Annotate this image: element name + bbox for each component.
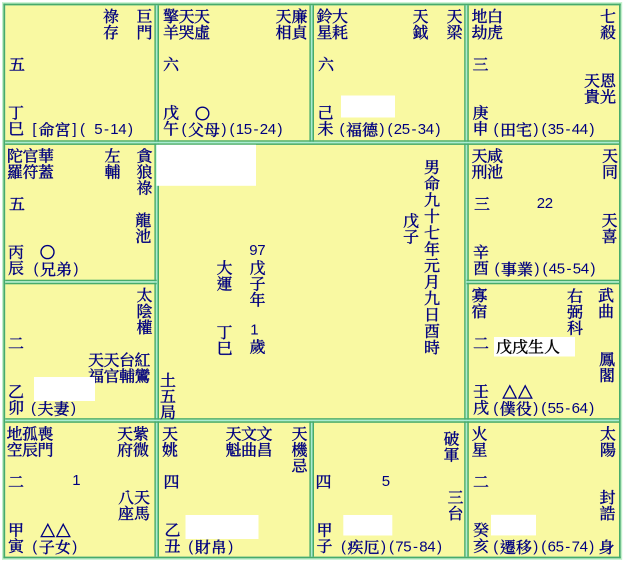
svg-text:): ) <box>535 261 540 278</box>
svg-text:): ) <box>533 538 538 555</box>
svg-text:): ) <box>74 261 79 278</box>
svg-text:(45-54): (45-54) <box>543 261 596 278</box>
svg-text:): ) <box>72 538 77 555</box>
svg-text:(35-44): (35-44) <box>542 121 595 138</box>
svg-text:(: ( <box>340 121 345 138</box>
svg-text:): ) <box>380 121 385 138</box>
svg-text:): ) <box>533 400 538 417</box>
svg-text:(25-34): (25-34) <box>388 121 441 138</box>
svg-text:(75-84): (75-84) <box>389 538 442 555</box>
svg-text:): ) <box>534 121 539 138</box>
svg-text:(: ( <box>493 538 498 555</box>
svg-text:5: 5 <box>382 473 390 490</box>
svg-text:1: 1 <box>72 472 80 489</box>
svg-text:(: ( <box>493 400 498 417</box>
svg-text:): ) <box>381 538 386 555</box>
svg-text:): ) <box>228 538 233 555</box>
svg-text:(: ( <box>188 538 193 555</box>
svg-text:): ) <box>71 400 76 417</box>
svg-text:97: 97 <box>249 242 265 259</box>
svg-text:1: 1 <box>250 321 258 338</box>
svg-text:(: ( <box>494 121 499 138</box>
svg-text:22: 22 <box>537 195 553 212</box>
svg-text:(15-24): (15-24) <box>230 121 283 138</box>
svg-text:(: ( <box>34 261 39 278</box>
svg-text:(: ( <box>341 538 346 555</box>
svg-text:): ) <box>222 121 227 138</box>
svg-text:(55-64): (55-64) <box>541 400 594 417</box>
svg-text:(65-74): (65-74) <box>541 538 594 555</box>
svg-text:(: ( <box>495 261 500 278</box>
svg-text:(: ( <box>182 121 187 138</box>
svg-text:(: ( <box>32 538 37 555</box>
svg-text:(: ( <box>31 400 36 417</box>
